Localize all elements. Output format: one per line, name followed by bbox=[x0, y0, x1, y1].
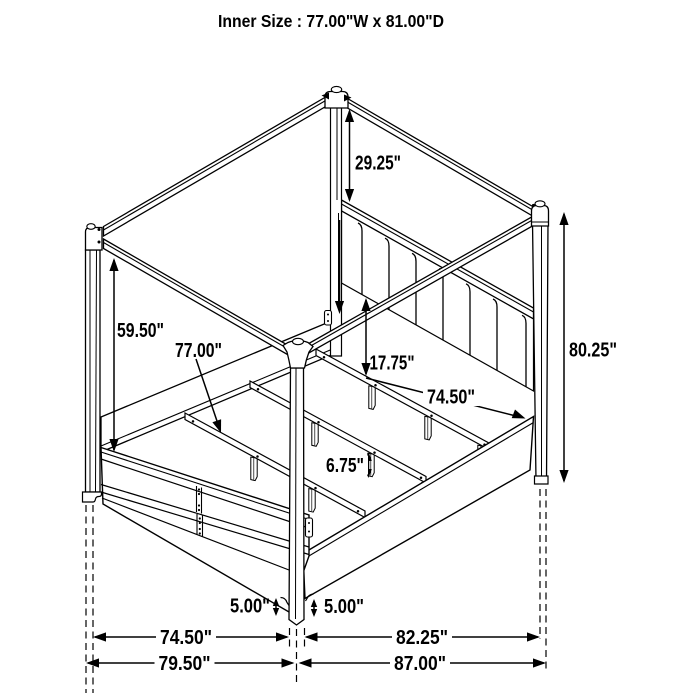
svg-text:80.25": 80.25" bbox=[569, 340, 617, 362]
svg-text:29.25": 29.25" bbox=[355, 153, 401, 175]
svg-text:5.00": 5.00" bbox=[230, 596, 270, 618]
svg-text:5.00": 5.00" bbox=[324, 596, 364, 618]
svg-text:77.00": 77.00" bbox=[175, 340, 222, 362]
svg-text:17.75": 17.75" bbox=[370, 353, 415, 375]
svg-text:74.50": 74.50" bbox=[160, 627, 212, 649]
svg-text:59.50": 59.50" bbox=[117, 320, 164, 342]
svg-text:87.00": 87.00" bbox=[394, 653, 446, 675]
svg-text:79.50": 79.50" bbox=[159, 653, 211, 675]
svg-text:74.50": 74.50" bbox=[427, 387, 475, 409]
svg-text:82.25": 82.25" bbox=[396, 627, 448, 649]
svg-text:Inner Size : 77.00"W x 81.00"D: Inner Size : 77.00"W x 81.00"D bbox=[218, 11, 444, 31]
svg-text:6.75": 6.75" bbox=[326, 455, 364, 477]
